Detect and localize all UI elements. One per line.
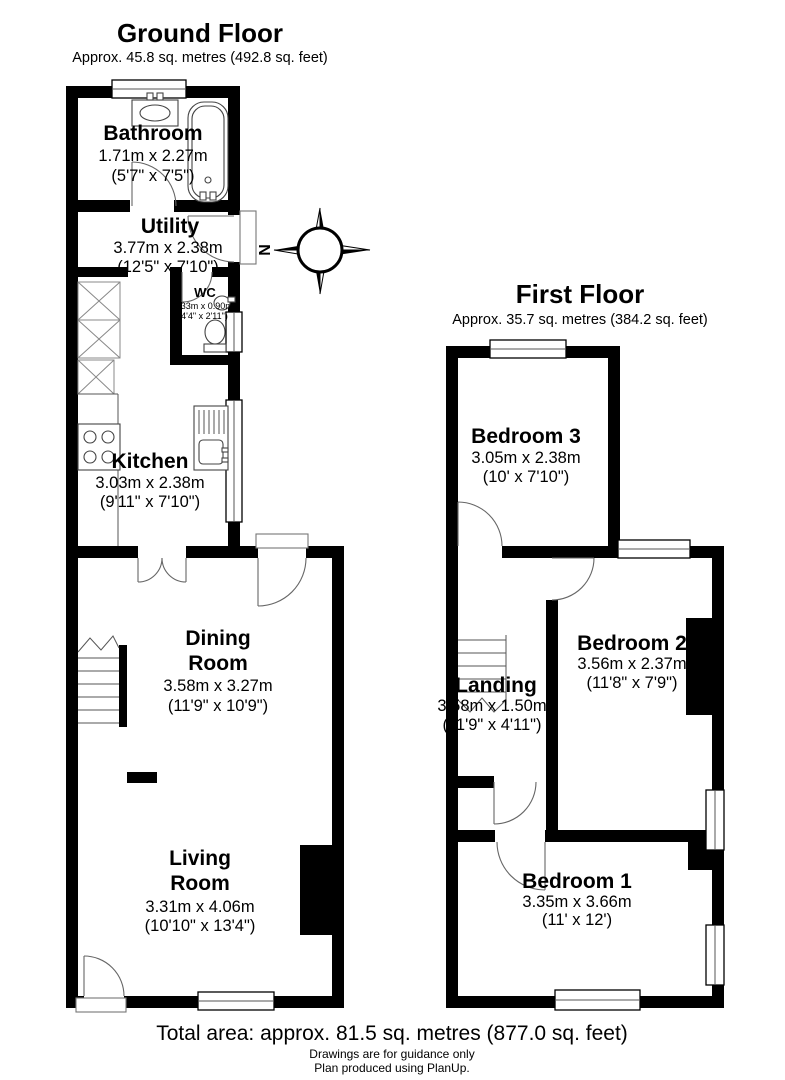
dining-room-label-line2: Room xyxy=(188,652,248,675)
dining-room-label-line1: Dining xyxy=(185,627,250,650)
landing-cupboard-door xyxy=(494,782,536,824)
front-door-porch xyxy=(76,998,126,1012)
entrance-door xyxy=(258,558,306,606)
utility-label: Utility xyxy=(141,215,200,238)
kitchen-french-door-left xyxy=(138,558,162,582)
dining-living-wall-stub xyxy=(127,772,157,783)
floor-plan-page: Ground Floor Approx. 45.8 sq. metres (49… xyxy=(0,0,785,1080)
bathroom-dim-metric: 1.71m x 2.27m xyxy=(98,147,207,165)
compass-north-label: N xyxy=(257,244,274,256)
living-room-label-line1: Living xyxy=(169,847,231,870)
wc-dim-metric: 1.33m x 0.90m xyxy=(173,301,233,311)
landing-bedroom2-wall xyxy=(546,600,558,842)
bedroom3-dim-imperial: (10' x 7'10") xyxy=(483,468,569,486)
living-room-dim-metric: 3.31m x 4.06m xyxy=(145,898,254,916)
landing-dim-metric: 3.58m x 1.50m xyxy=(437,697,546,715)
ground-floor-title: Ground Floor xyxy=(117,18,283,48)
bedroom1-label: Bedroom 1 xyxy=(522,870,632,893)
utility-side-porch xyxy=(240,211,256,264)
bedroom2-dim-imperial: (11'8" x 7'9") xyxy=(586,674,677,692)
ground-floor-area: Approx. 45.8 sq. metres (492.8 sq. feet) xyxy=(72,50,328,66)
utility-dim-imperial: (12'5" x 7'10") xyxy=(117,258,218,276)
bedroom3-label: Bedroom 3 xyxy=(471,425,581,448)
stairs-ground xyxy=(78,636,119,723)
bedroom3-door xyxy=(458,502,502,546)
kitchen-sink xyxy=(194,406,228,470)
dining-room-dim-metric: 3.58m x 3.27m xyxy=(163,677,272,695)
floor-plan-image: Ground Floor Approx. 45.8 sq. metres (49… xyxy=(0,0,785,1080)
wc-dim-imperial: (4'4" x 2'11") xyxy=(178,311,228,321)
credit-text: Plan produced using PlanUp. xyxy=(314,1061,469,1075)
chimney-breast-living xyxy=(300,845,332,935)
utility-dim-metric: 3.77m x 2.38m xyxy=(113,239,222,257)
bathroom-dim-imperial: (5'7" x 7'5") xyxy=(111,167,194,185)
living-room-label-line2: Room xyxy=(170,872,230,895)
entrance-porch xyxy=(256,534,308,548)
bathroom-label: Bathroom xyxy=(103,122,202,145)
footer: Total area: approx. 81.5 sq. metres (877… xyxy=(156,1022,628,1075)
landing-dim-imperial: (11'9" x 4'11") xyxy=(442,716,541,734)
dining-room-dim-imperial: (11'9" x 10'9") xyxy=(168,697,268,715)
first-floor-plan: First Floor Approx. 35.7 sq. metres (384… xyxy=(437,279,724,1010)
bedroom2-label: Bedroom 2 xyxy=(577,632,687,655)
living-room-dim-imperial: (10'10" x 13'4") xyxy=(145,917,256,935)
bedroom1-dim-imperial: (11' x 12') xyxy=(542,911,612,929)
kitchen-dim-imperial: (9'11" x 7'10") xyxy=(100,493,200,511)
wc-label: WC xyxy=(194,285,216,300)
compass-icon: N xyxy=(257,208,370,294)
first-floor-area: Approx. 35.7 sq. metres (384.2 sq. feet) xyxy=(452,312,708,328)
toilet xyxy=(204,320,226,352)
disclaimer-text: Drawings are for guidance only xyxy=(309,1047,474,1061)
chimney-breast-bedroom2 xyxy=(686,618,712,715)
ground-floor-plan: Ground Floor Approx. 45.8 sq. metres (49… xyxy=(66,18,344,1012)
kitchen-label: Kitchen xyxy=(111,450,188,473)
bedroom2-door xyxy=(552,558,594,600)
bedroom1-dim-metric: 3.35m x 3.66m xyxy=(522,893,631,911)
front-door xyxy=(84,956,124,996)
first-floor-title: First Floor xyxy=(516,279,645,309)
total-area-text: Total area: approx. 81.5 sq. metres (877… xyxy=(156,1022,628,1045)
bedroom3-dim-metric: 3.05m x 2.38m xyxy=(471,449,580,467)
bedroom2-dim-metric: 3.56m x 2.37m xyxy=(577,655,686,673)
kitchen-french-door-right xyxy=(162,558,186,582)
landing-wall-stub xyxy=(458,776,494,788)
kitchen-dim-metric: 3.03m x 2.38m xyxy=(95,474,204,492)
landing-label: Landing xyxy=(455,674,537,697)
stair-newel-wall xyxy=(119,645,127,727)
storage-cupboards xyxy=(78,282,120,394)
first-floor-labels: Bedroom 3 3.05m x 2.38m (10' x 7'10") Be… xyxy=(437,425,686,929)
